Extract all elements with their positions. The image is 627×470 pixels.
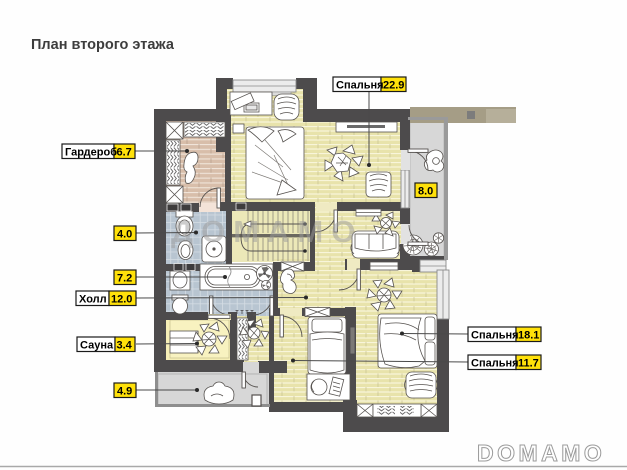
- svg-text:4.9: 4.9: [117, 386, 132, 398]
- svg-text:ДОМАМО: ДОМАМО: [171, 214, 363, 249]
- svg-text:Холл: Холл: [79, 294, 107, 306]
- svg-text:12.0: 12.0: [111, 294, 132, 306]
- svg-text:Спальня: Спальня: [471, 330, 519, 342]
- svg-text:6.7: 6.7: [117, 147, 132, 159]
- svg-text:Сауна: Сауна: [80, 340, 114, 352]
- svg-text:План второго этажа: План второго этажа: [31, 37, 175, 53]
- svg-text:18.1: 18.1: [518, 330, 539, 342]
- svg-text:8.0: 8.0: [418, 186, 433, 198]
- svg-text:Спальня: Спальня: [336, 80, 384, 92]
- svg-text:3.4: 3.4: [117, 340, 133, 352]
- svg-text:Спальня: Спальня: [471, 358, 519, 370]
- svg-text:Гардероб: Гардероб: [65, 147, 117, 159]
- svg-text:7.2: 7.2: [117, 273, 132, 285]
- svg-text:22.9: 22.9: [383, 80, 404, 92]
- svg-text:4.0: 4.0: [117, 229, 132, 241]
- svg-text:11.7: 11.7: [518, 358, 539, 370]
- svg-text:DOMAMO: DOMAMO: [477, 440, 605, 466]
